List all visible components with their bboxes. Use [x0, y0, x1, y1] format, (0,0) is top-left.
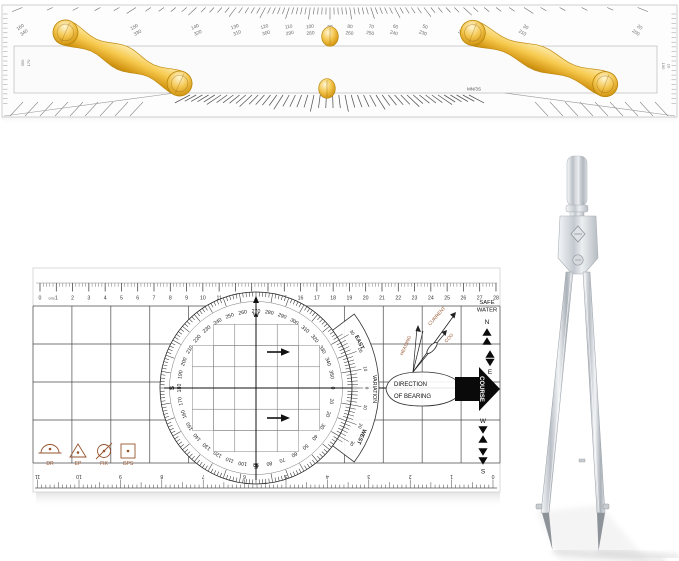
pr-right-edge-label-1: 190 [661, 63, 666, 70]
fix-symbol-label: FIX [100, 461, 108, 467]
bottom-scale-number: 2 [409, 473, 412, 479]
divider-leg-pin [579, 459, 585, 462]
cm-number: 6 [136, 296, 139, 302]
svg-text:280: 280 [306, 30, 315, 37]
svg-text:80: 80 [347, 24, 353, 30]
divider-leg-screw-left [536, 504, 542, 509]
bottom-scale-number: 0 [491, 473, 494, 479]
course-plotter: 0cms123456789101112131415161718192021222… [33, 268, 500, 508]
bearing-line1: DIRECTION [394, 382, 427, 388]
cm-number: 16 [298, 296, 304, 302]
cm-number: 17 [314, 296, 320, 302]
bottom-scale-number: 10 [76, 473, 82, 479]
rose-axis-bottom-letter: E [254, 462, 258, 468]
pr-left-edge-label-1: 350 [20, 59, 25, 66]
divider-handle [566, 156, 588, 216]
course-arrow-label: COURSE [478, 376, 484, 402]
variation-title: VARIATION [371, 375, 377, 403]
cm-number: 1 [55, 296, 58, 302]
ep-symbol-label: EP [75, 461, 82, 467]
dr-symbol-label: DR [46, 461, 54, 467]
cm-number: 4 [104, 296, 107, 302]
scene-svg: 1603401503301403201303101203001102901002… [0, 0, 679, 561]
svg-text:260: 260 [345, 30, 354, 37]
cm-number: 3 [87, 296, 90, 302]
bottom-scale-number: 8 [160, 473, 163, 479]
bottom-scale-number: 9 [119, 473, 122, 479]
bottom-scale-number: 1 [450, 473, 453, 479]
pr-left-edge-label-2: 170 [26, 59, 31, 66]
rose-axis-top-letter: W [253, 313, 259, 319]
variation-number: 0 [365, 387, 370, 390]
cm-number: 2 [71, 296, 74, 302]
nautical-tools-product-photo: 1603401503301403201303101203001102901002… [0, 0, 679, 561]
west-letter: W [480, 418, 487, 425]
divider-leg-screw-right [603, 504, 609, 509]
east-letter: E [488, 369, 493, 376]
bottom-scale-number: 3 [367, 473, 370, 479]
divider-compass [536, 156, 679, 561]
pr-right-edge-label-2: 10 [667, 64, 672, 69]
cm-number: 10 [200, 296, 206, 302]
bottom-scale-number: 7 [202, 473, 205, 479]
cm-number: 5 [120, 296, 123, 302]
cm-number: 8 [169, 296, 172, 302]
gps-symbol-label: GPS [123, 461, 134, 467]
pr-bottom-label-right: MN/3S [467, 87, 481, 92]
divider-head [558, 216, 598, 274]
cm-number: 9 [185, 296, 188, 302]
bottom-scale-number: 5 [284, 473, 287, 479]
cm-number: 0 [39, 296, 42, 302]
safe-water-line1: SAFE [479, 300, 494, 306]
rose-axis-left-letter: S [170, 386, 176, 390]
cm-number: 26 [461, 296, 467, 302]
bottom-scale-number: 4 [326, 473, 329, 479]
bottom-scale-number: 6 [243, 473, 246, 479]
bearing-line2: OF BEARING [394, 394, 431, 400]
cm-number: 18 [330, 296, 336, 302]
cm-number: 21 [379, 296, 385, 302]
cm-number: 23 [412, 296, 418, 302]
north-letter: N [485, 319, 490, 326]
parallel-ruler: 1603401503301403201303101203001102901002… [2, 5, 677, 125]
cm-number: 24 [428, 296, 434, 302]
plotter-shadow [36, 492, 500, 508]
bottom-scale-number: 11 [35, 473, 40, 479]
south-letter: S [481, 469, 486, 476]
cm-number: 19 [347, 296, 353, 302]
svg-text:100: 100 [306, 24, 315, 31]
rose-degree-label: 80 [266, 460, 273, 467]
cm-number: 20 [363, 296, 369, 302]
cm-number: 7 [153, 296, 156, 302]
safe-water-line2: WATER [477, 308, 497, 314]
cm-number: 25 [444, 296, 450, 302]
cm-number: 22 [395, 296, 401, 302]
rose-degree-label: 10 [328, 398, 335, 405]
